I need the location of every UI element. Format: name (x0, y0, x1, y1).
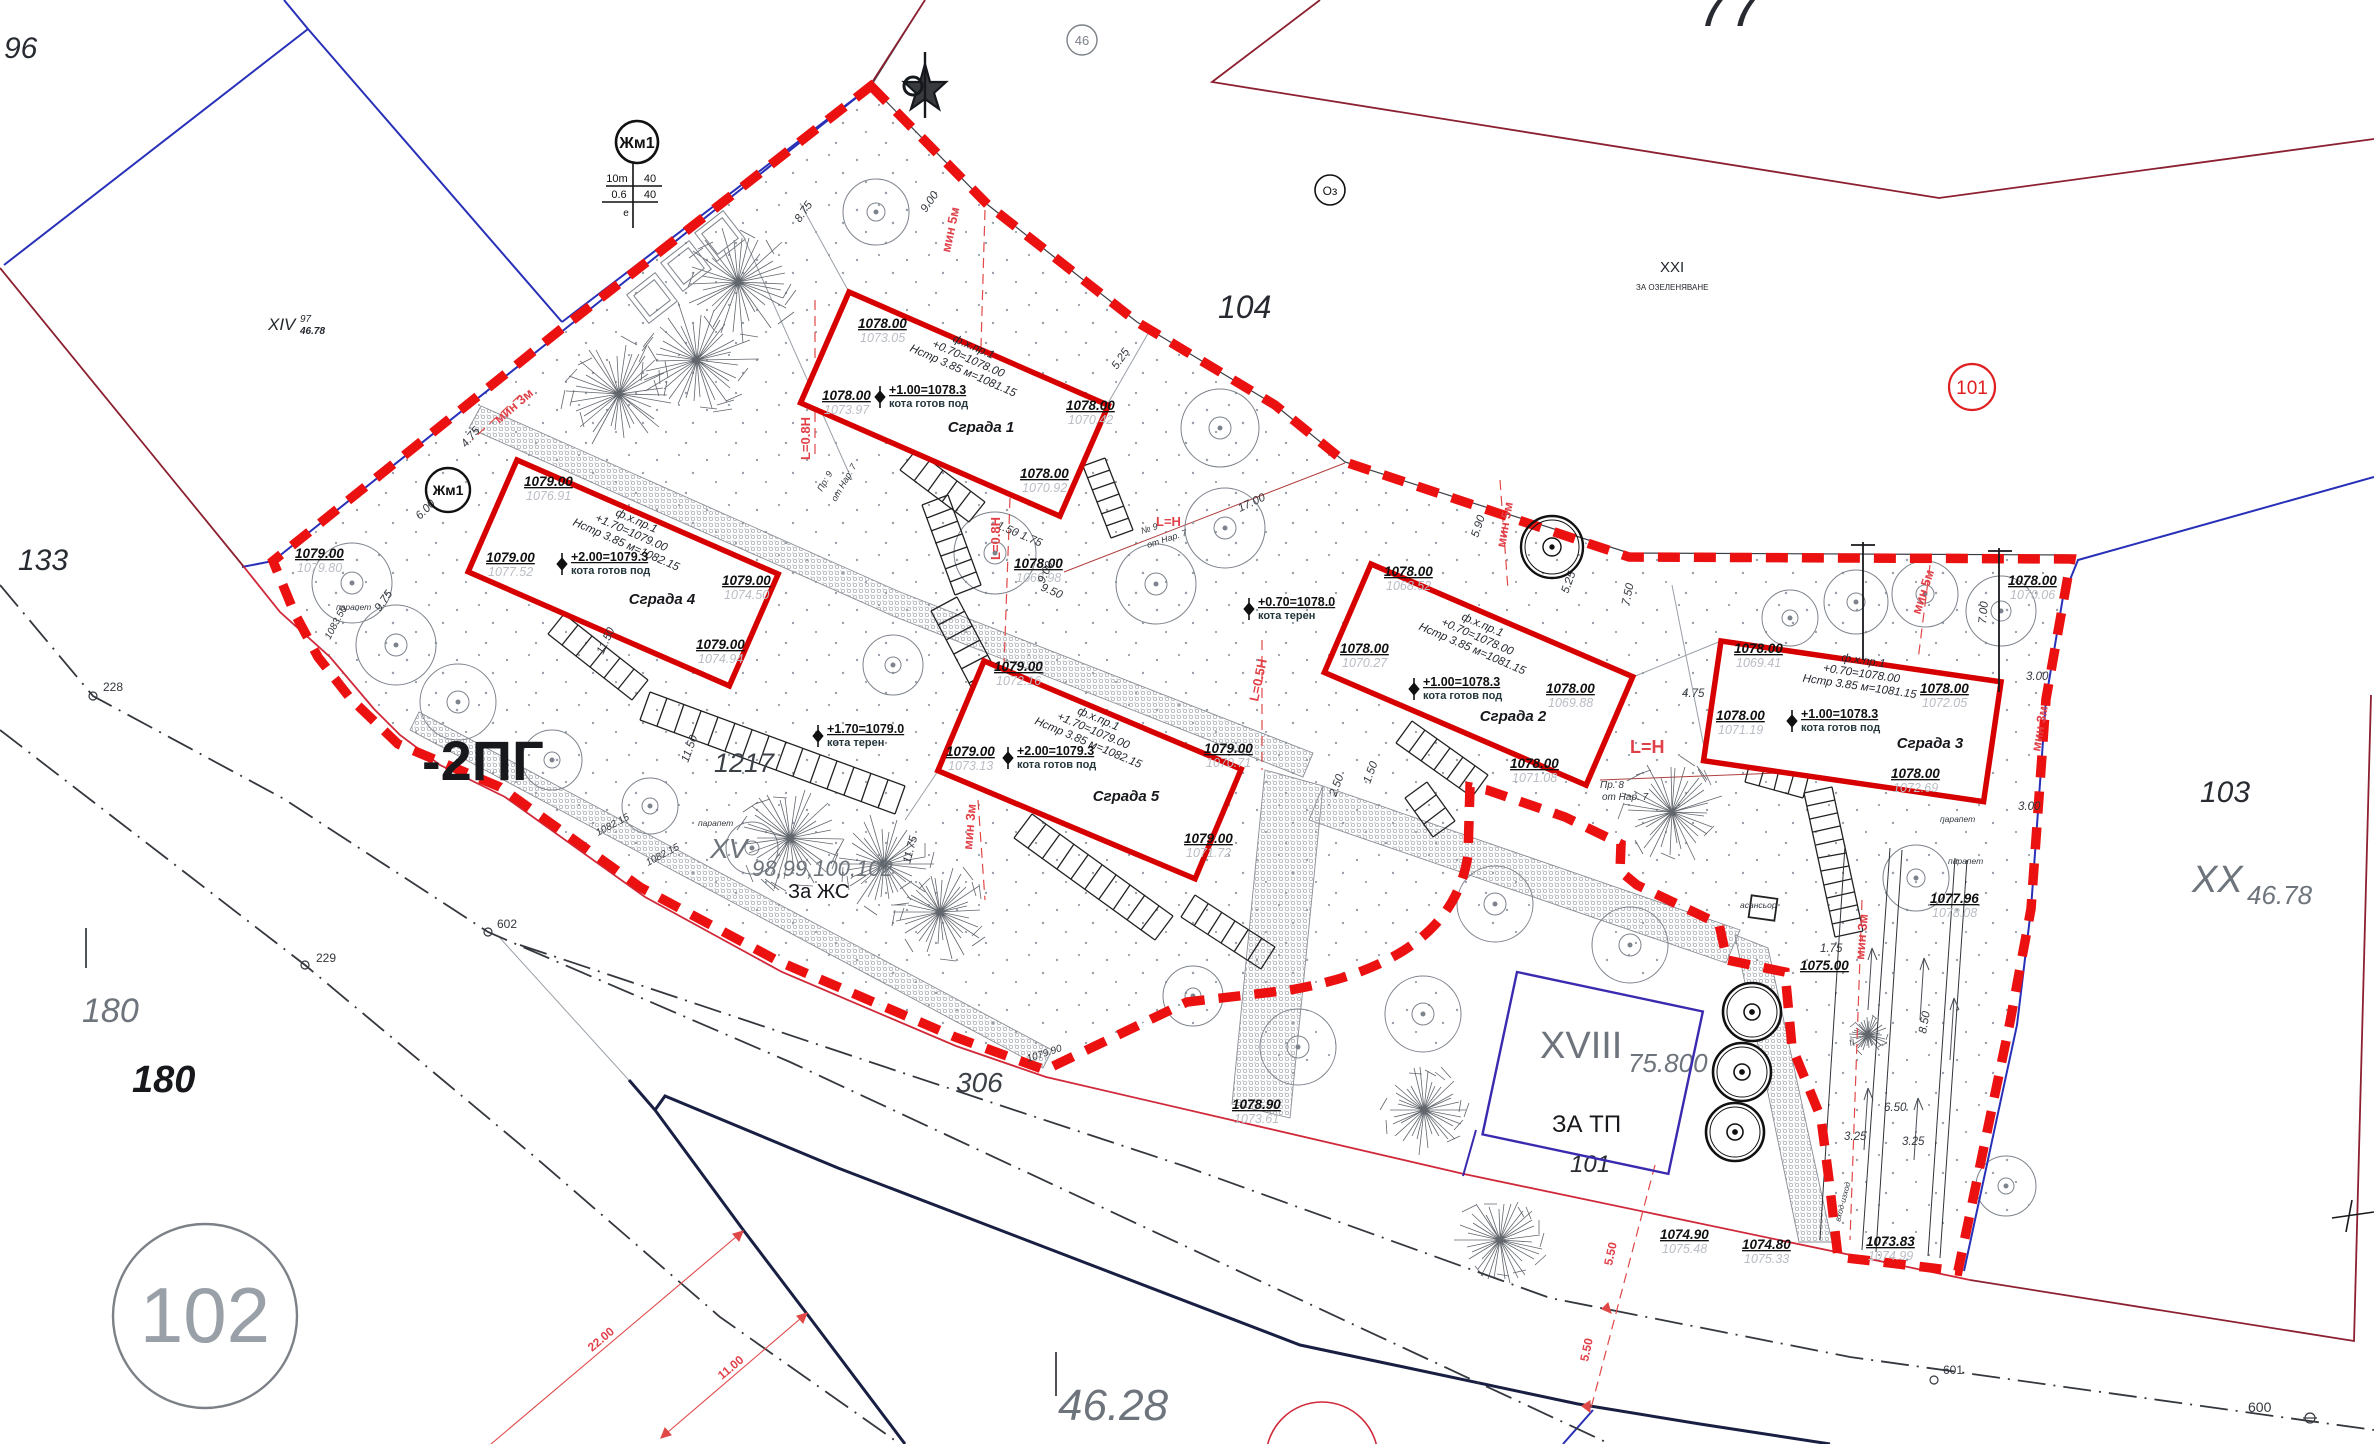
svg-text:3.25: 3.25 (1902, 1136, 1925, 1148)
svg-text:180: 180 (132, 1059, 195, 1101)
svg-text:600: 600 (2248, 1399, 2272, 1415)
svg-text:1078.00: 1078.00 (1734, 641, 1783, 656)
svg-text:1078.00: 1078.00 (1920, 681, 1969, 696)
svg-text:XVIII: XVIII (1540, 1025, 1622, 1067)
svg-text:1072.05: 1072.05 (1922, 696, 1967, 710)
svg-text:кота терен: кота терен (827, 737, 884, 749)
svg-text:602: 602 (497, 917, 517, 931)
svg-text:180: 180 (82, 992, 139, 1030)
svg-text:1072.69: 1072.69 (1893, 781, 1938, 795)
svg-text:1071.08: 1071.08 (1512, 771, 1557, 785)
svg-text:1074.99: 1074.99 (1868, 1249, 1913, 1263)
svg-text:6.50: 6.50 (1884, 1102, 1907, 1114)
svg-text:Сграда 5: Сграда 5 (1093, 788, 1160, 805)
svg-text:1078.00: 1078.00 (1014, 556, 1063, 571)
svg-text:77: 77 (1698, 0, 1765, 39)
svg-text:1078.00: 1078.00 (1340, 641, 1389, 656)
svg-text:1078.00: 1078.00 (2008, 573, 2057, 588)
svg-text:+2.00=1079.3: +2.00=1079.3 (1017, 744, 1094, 758)
svg-text:Пр. 8: Пр. 8 (1600, 780, 1624, 791)
svg-text:1069.88: 1069.88 (1548, 696, 1593, 710)
svg-text:96: 96 (4, 32, 38, 65)
svg-text:1076.91: 1076.91 (526, 489, 571, 503)
svg-text:1074.94: 1074.94 (698, 652, 743, 666)
svg-text:Сграда 4: Сграда 4 (629, 591, 696, 608)
svg-text:+2.00=1079.3: +2.00=1079.3 (571, 550, 648, 564)
svg-text:1070.27: 1070.27 (1342, 656, 1388, 670)
svg-text:1069.41: 1069.41 (1736, 656, 1781, 670)
svg-text:1072.16: 1072.16 (996, 674, 1041, 688)
svg-text:1079.00: 1079.00 (1204, 741, 1253, 756)
svg-text:кота готов под: кота готов под (1017, 759, 1096, 771)
svg-text:102: 102 (140, 1271, 270, 1359)
svg-text:46.78: 46.78 (299, 326, 325, 337)
svg-text:1068.52: 1068.52 (1386, 579, 1431, 593)
svg-text:1075.33: 1075.33 (1744, 1252, 1789, 1266)
svg-text:кота готов под: кота готов под (571, 565, 650, 577)
svg-text:ЗА ОЗЕЛЕНЯВАНЕ: ЗА ОЗЕЛЕНЯВАНЕ (1636, 283, 1708, 292)
svg-text:1078.90: 1078.90 (1232, 1097, 1281, 1112)
svg-text:+0.70=1078.0: +0.70=1078.0 (1258, 595, 1335, 609)
svg-text:1079.00: 1079.00 (1184, 831, 1233, 846)
svg-text:1079.80: 1079.80 (297, 561, 342, 575)
svg-text:ЗА ТП: ЗА ТП (1552, 1111, 1621, 1138)
svg-text:1079.00: 1079.00 (946, 744, 995, 759)
svg-text:1074.50: 1074.50 (724, 588, 769, 602)
svg-text:101: 101 (1956, 378, 1988, 399)
svg-text:XIV: XIV (267, 315, 297, 334)
svg-text:228: 228 (103, 680, 123, 694)
svg-text:парапет: парапет (1948, 856, 1983, 866)
svg-text:1078.00: 1078.00 (1891, 766, 1940, 781)
svg-text:1079.00: 1079.00 (722, 573, 771, 588)
svg-text:133: 133 (18, 544, 68, 577)
svg-text:+1.00=1078.3: +1.00=1078.3 (1423, 675, 1500, 689)
svg-text:7.00: 7.00 (1977, 600, 1991, 624)
svg-text:L=0.8H: L=0.8H (988, 517, 1003, 560)
svg-text:1073.13: 1073.13 (948, 759, 993, 773)
svg-text:4.75: 4.75 (1682, 688, 1705, 700)
svg-text:парапет: парапет (1940, 814, 1975, 824)
svg-text:+1.70=1079.0: +1.70=1079.0 (827, 722, 904, 736)
svg-text:-2ПГ: -2ПГ (422, 729, 544, 792)
svg-text:1078.00: 1078.00 (1066, 398, 1115, 413)
svg-text:1070.92: 1070.92 (1022, 481, 1067, 495)
svg-text:46.28: 46.28 (1058, 1381, 1169, 1430)
svg-text:1071.19: 1071.19 (1718, 723, 1763, 737)
svg-text:Сграда 3: Сграда 3 (1897, 735, 1964, 752)
svg-text:103: 103 (2200, 776, 2250, 809)
svg-text:кота терен: кота терен (1258, 610, 1315, 622)
svg-text:1078.00: 1078.00 (1510, 756, 1559, 771)
svg-text:97: 97 (300, 314, 312, 325)
svg-text:Жм1: Жм1 (432, 482, 464, 498)
svg-text:парапет: парапет (698, 818, 733, 828)
svg-text:1077.52: 1077.52 (488, 565, 533, 579)
svg-text:3.25: 3.25 (1844, 1131, 1867, 1143)
svg-text:1217: 1217 (714, 748, 775, 778)
svg-text:Жм1: Жм1 (618, 135, 654, 152)
svg-text:1078.00: 1078.00 (1716, 708, 1765, 723)
svg-text:1070.06: 1070.06 (2010, 588, 2055, 602)
svg-text:XV: XV (709, 833, 750, 864)
svg-text:е: е (623, 208, 629, 219)
svg-text:L=H: L=H (1156, 514, 1181, 529)
svg-text:1078.00: 1078.00 (822, 388, 871, 403)
svg-text:1079.00: 1079.00 (486, 550, 535, 565)
svg-text:1079.00: 1079.00 (994, 659, 1043, 674)
svg-text:кота готов под: кота готов под (1801, 722, 1880, 734)
svg-text:1074.90: 1074.90 (1660, 1227, 1709, 1242)
svg-text:306: 306 (956, 1067, 1003, 1098)
svg-text:1073.61: 1073.61 (1234, 1112, 1279, 1126)
svg-text:кота готов под: кота готов под (1423, 690, 1502, 702)
svg-text:3.00: 3.00 (2026, 671, 2049, 683)
svg-text:98,99,100,102: 98,99,100,102 (752, 856, 893, 881)
svg-text:40: 40 (644, 173, 656, 185)
svg-text:L=H: L=H (1630, 737, 1665, 757)
svg-text:46.78: 46.78 (2247, 880, 2313, 910)
svg-text:75.800: 75.800 (1628, 1048, 1708, 1078)
svg-text:Сграда 1: Сграда 1 (948, 419, 1014, 436)
svg-text:Оз: Оз (1323, 184, 1338, 198)
svg-text:1075.48: 1075.48 (1662, 1242, 1707, 1256)
svg-text:1070.71: 1070.71 (1206, 756, 1251, 770)
svg-text:601: 601 (1943, 1363, 1963, 1377)
svg-text:1075.00: 1075.00 (1800, 958, 1849, 973)
svg-text:XXI: XXI (1660, 259, 1684, 276)
svg-text:кота готов под: кота готов под (889, 398, 968, 410)
svg-text:1079.00: 1079.00 (524, 474, 573, 489)
svg-text:104: 104 (1218, 289, 1271, 325)
svg-text:от Нар. 7: от Нар. 7 (1602, 792, 1649, 803)
svg-text:Сграда 2: Сграда 2 (1480, 708, 1547, 725)
svg-text:40: 40 (644, 189, 656, 201)
svg-text:46: 46 (1075, 33, 1089, 48)
svg-text:1071.72: 1071.72 (1186, 846, 1231, 860)
svg-text:1078.00: 1078.00 (858, 316, 907, 331)
svg-text:3.00: 3.00 (2018, 801, 2041, 813)
svg-text:1078.00: 1078.00 (1546, 681, 1595, 696)
svg-text:+1.00=1078.3: +1.00=1078.3 (1801, 707, 1878, 721)
svg-text:1078.00: 1078.00 (1020, 466, 1069, 481)
svg-text:229: 229 (316, 951, 336, 965)
svg-text:1079.00: 1079.00 (295, 546, 344, 561)
svg-text:1079.00: 1079.00 (696, 637, 745, 652)
svg-text:1074.80: 1074.80 (1742, 1237, 1791, 1252)
svg-text:1070.42: 1070.42 (1068, 413, 1113, 427)
svg-text:1073.97: 1073.97 (824, 403, 870, 417)
svg-text:За ЖС: За ЖС (788, 881, 849, 903)
svg-text:0.6: 0.6 (611, 189, 626, 201)
svg-text:асансьор: асансьор (1740, 900, 1777, 910)
svg-text:1078.08: 1078.08 (1932, 906, 1977, 920)
svg-text:1078.00: 1078.00 (1384, 564, 1433, 579)
svg-text:1.75: 1.75 (1820, 943, 1843, 955)
svg-text:1073.83: 1073.83 (1866, 1234, 1915, 1249)
svg-text:+1.00=1078.3: +1.00=1078.3 (889, 383, 966, 397)
svg-text:1077.96: 1077.96 (1930, 891, 1979, 906)
svg-text:1073.05: 1073.05 (860, 331, 905, 345)
svg-text:L=0.8H: L=0.8H (798, 417, 813, 460)
svg-text:10m: 10m (606, 173, 627, 185)
svg-text:XX: XX (2191, 859, 2244, 901)
